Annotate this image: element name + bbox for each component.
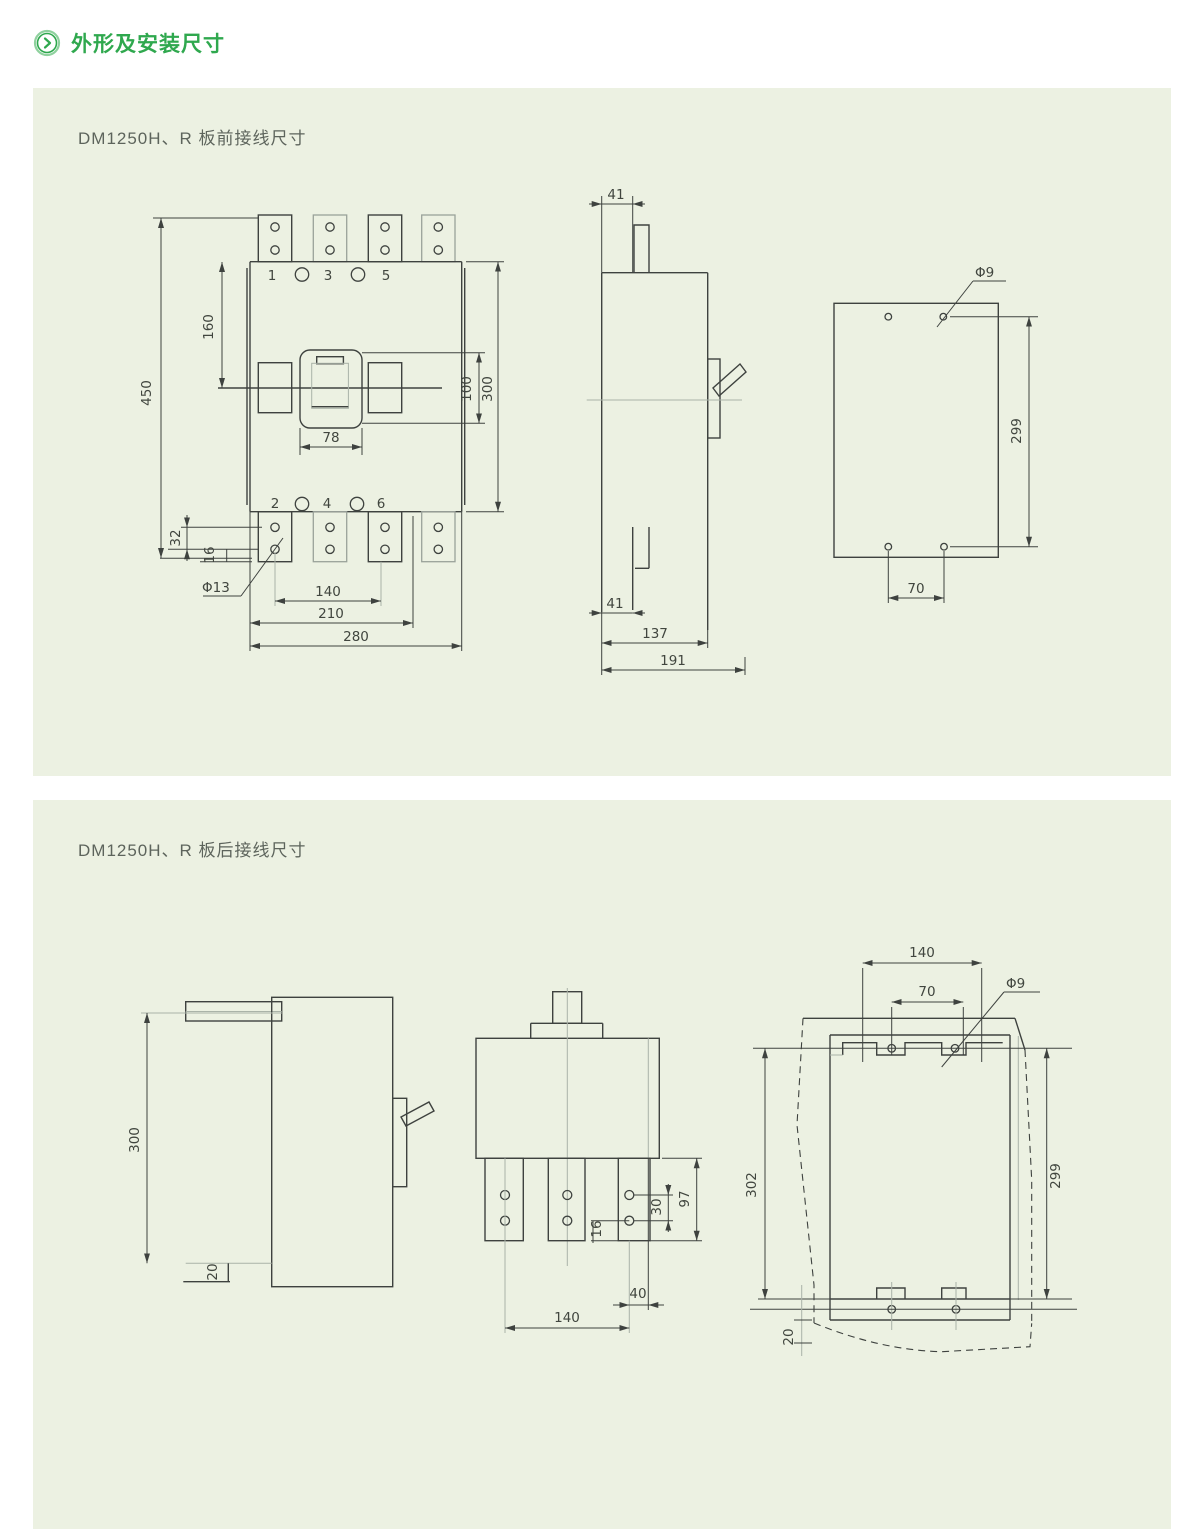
rear-view-dimensions bbox=[505, 1158, 702, 1328]
pole-number: 6 bbox=[377, 496, 386, 512]
breaker-body-side bbox=[272, 997, 393, 1286]
handle-escutcheon bbox=[218, 350, 442, 428]
dim-bottom-gap: 20 bbox=[781, 1328, 797, 1345]
dim-handle-width: 78 bbox=[322, 430, 339, 446]
dim-height-left: 302 bbox=[744, 1172, 760, 1198]
cover-outline bbox=[797, 1018, 1032, 1351]
mounting-plate-rear bbox=[830, 1035, 1018, 1330]
rear-mounting-dimensions bbox=[750, 963, 1077, 1356]
mounting-view: Φ9 299 70 bbox=[834, 265, 1038, 603]
dim-pitch-h: 140 bbox=[554, 1310, 580, 1326]
chevron-right-circle-icon bbox=[33, 29, 61, 57]
dim-terminal-hole: Φ13 bbox=[202, 580, 230, 596]
dim-pad-thickness: 16 bbox=[202, 546, 218, 563]
pole-number: 3 bbox=[324, 268, 333, 284]
page-title: 外形及安装尺寸 bbox=[71, 28, 225, 58]
handle-pocket bbox=[393, 1098, 407, 1186]
dim-pitch-h: 70 bbox=[918, 984, 935, 1000]
dim-width: 140 bbox=[909, 945, 935, 961]
pole-number: 5 bbox=[382, 268, 391, 284]
dim-width-mid: 210 bbox=[318, 606, 344, 622]
front-view: 1 3 5 2 4 6 bbox=[139, 215, 504, 651]
dim-hole-dia: Φ9 bbox=[1006, 976, 1025, 992]
toggle-handle bbox=[401, 1102, 434, 1126]
dim-hole-pitch-v: 30 bbox=[649, 1198, 665, 1215]
top-terminal-tab bbox=[634, 225, 649, 273]
rear-panel-drawing: 300 20 bbox=[33, 800, 1171, 1529]
breaker-body bbox=[247, 262, 465, 512]
mounting-plate bbox=[834, 303, 998, 557]
terminal-tab bbox=[313, 512, 346, 562]
dim-pitch-v: 299 bbox=[1009, 418, 1025, 444]
dim-body-width: 280 bbox=[343, 629, 369, 645]
terminal-tab bbox=[422, 512, 455, 562]
dim-strip-end: 16 bbox=[589, 1220, 605, 1237]
dim-top-to-center: 160 bbox=[201, 314, 217, 340]
rear-wiring-panel: DM1250H、R 板后接线尺寸 300 20 bbox=[33, 800, 1171, 1529]
dim-tab-bottom: 41 bbox=[606, 596, 623, 612]
dim-pitch-h: 70 bbox=[907, 581, 924, 597]
dim-stud-offset: 20 bbox=[205, 1263, 221, 1280]
dim-strip-length: 97 bbox=[677, 1190, 693, 1207]
dim-overall-height: 450 bbox=[139, 380, 155, 406]
terminal-holes bbox=[271, 523, 443, 553]
rear-side-dimensions bbox=[141, 1013, 282, 1263]
pole-number: 2 bbox=[271, 496, 280, 512]
side-view: 41 41 137 191 bbox=[587, 187, 746, 675]
dim-hole-pitch: 140 bbox=[315, 584, 341, 600]
bottom-terminal-tab bbox=[633, 527, 649, 610]
dim-height: 300 bbox=[127, 1127, 143, 1153]
rear-view: 30 97 16 40 140 bbox=[476, 988, 702, 1333]
terminal-tab bbox=[368, 512, 401, 562]
front-wiring-panel: DM1250H、R 板前接线尺寸 bbox=[33, 88, 1171, 776]
dim-overall-depth: 191 bbox=[660, 653, 686, 669]
rear-stud-bottom bbox=[183, 1263, 271, 1281]
handle-pocket bbox=[708, 359, 720, 438]
terminal-holes bbox=[271, 223, 443, 254]
dim-body-height: 300 bbox=[480, 376, 496, 402]
dim-body-depth: 137 bbox=[642, 626, 668, 642]
dim-tab-top: 41 bbox=[607, 187, 624, 203]
dim-offset: 40 bbox=[629, 1286, 646, 1302]
rear-mounting-view: 140 70 Φ9 302 299 20 bbox=[744, 945, 1077, 1356]
section-header: 外形及安装尺寸 bbox=[33, 28, 225, 58]
dim-height-right: 299 bbox=[1048, 1163, 1064, 1189]
rear-side-view: 300 20 bbox=[127, 997, 434, 1286]
pole-number: 4 bbox=[323, 496, 332, 512]
pole-number: 1 bbox=[268, 268, 277, 284]
dim-hole-dia: Φ9 bbox=[975, 265, 994, 281]
dim-cutout-height: 100 bbox=[459, 376, 475, 402]
front-panel-drawing: 1 3 5 2 4 6 bbox=[33, 88, 1171, 776]
toggle-handle bbox=[713, 364, 746, 396]
dim-hole-offset: 32 bbox=[168, 529, 184, 546]
